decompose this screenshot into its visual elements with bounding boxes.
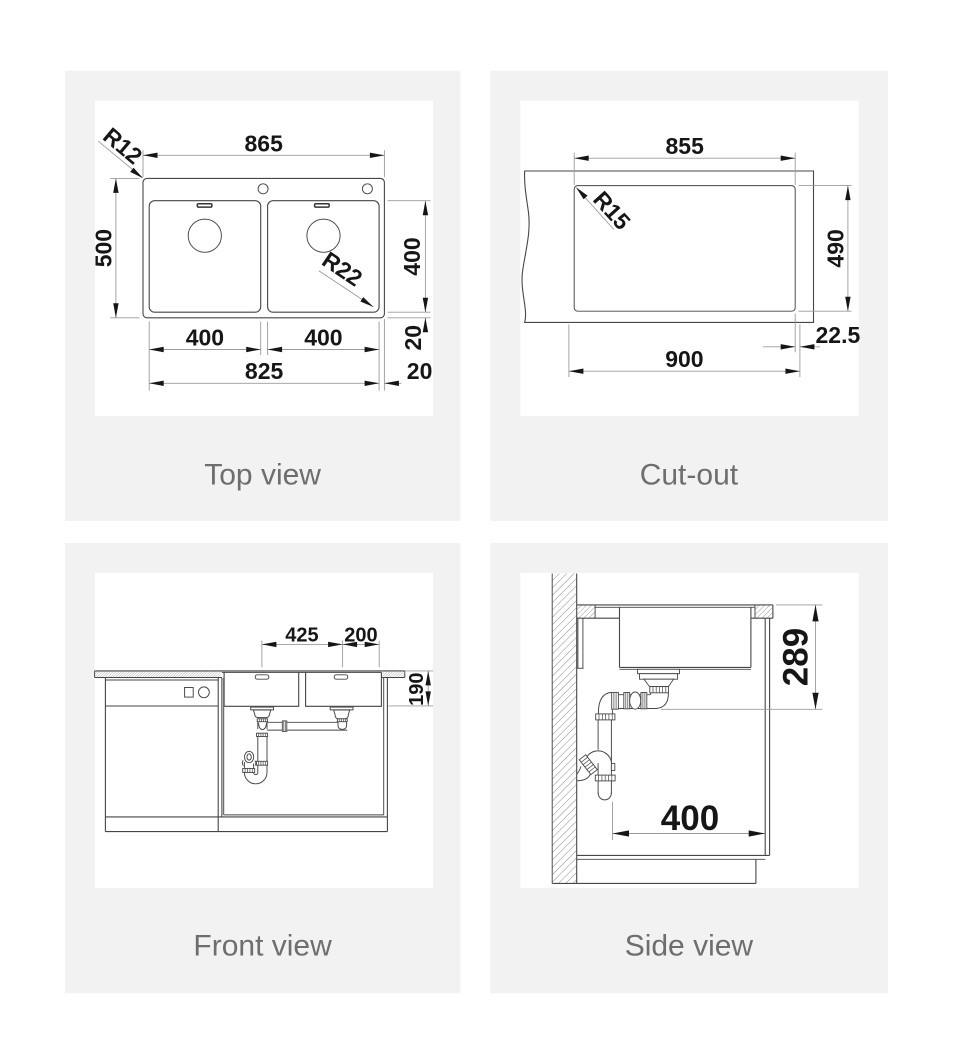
svg-text:22.5: 22.5 (816, 322, 861, 348)
svg-text:425: 425 (285, 624, 318, 646)
svg-text:400: 400 (661, 799, 719, 838)
svg-text:855: 855 (666, 133, 705, 159)
svg-text:825: 825 (245, 358, 284, 384)
svg-text:Cut-out: Cut-out (640, 458, 739, 491)
svg-text:20: 20 (407, 358, 433, 384)
svg-text:200: 200 (344, 624, 377, 646)
svg-text:400: 400 (399, 237, 425, 275)
svg-text:500: 500 (91, 229, 117, 267)
svg-text:190: 190 (406, 673, 428, 706)
svg-text:Top view: Top view (204, 458, 321, 491)
svg-text:400: 400 (186, 324, 224, 350)
svg-text:Front view: Front view (193, 929, 332, 962)
svg-text:490: 490 (823, 229, 849, 267)
svg-text:Side view: Side view (625, 929, 754, 962)
svg-text:400: 400 (304, 324, 342, 350)
svg-text:20: 20 (400, 325, 426, 351)
svg-text:865: 865 (245, 130, 284, 156)
svg-text:900: 900 (665, 346, 703, 372)
svg-text:289: 289 (777, 628, 816, 686)
